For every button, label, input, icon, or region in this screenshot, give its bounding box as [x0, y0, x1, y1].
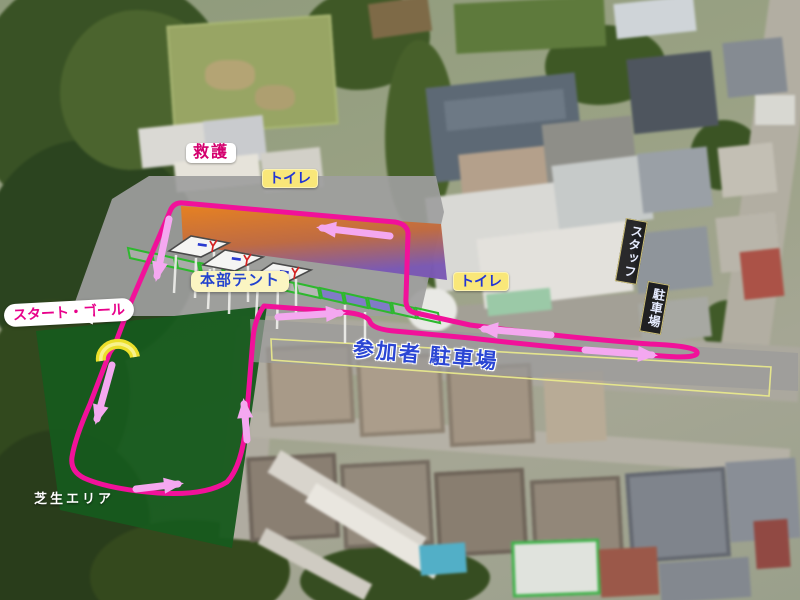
lawn-area-label: 芝生エリア: [34, 492, 114, 506]
direction-arrow-icon: [136, 484, 178, 489]
toilet-label-school: トイレ: [453, 272, 509, 291]
direction-arrow-icon: [278, 313, 340, 317]
lawn-area-overlay: [36, 306, 267, 548]
event-course-map: 救護 トイレ 本部テント トイレ スタート・ゴール スタッフ 駐車場 参加者 駐…: [0, 0, 800, 600]
direction-arrow-icon: [484, 329, 551, 335]
hq-tent-label: 本部テント: [191, 271, 289, 292]
first-aid-label: 救護: [186, 143, 236, 163]
direction-arrow-icon: [244, 404, 247, 440]
toilet-label-north: トイレ: [262, 169, 318, 188]
direction-arrow-icon: [585, 350, 652, 355]
